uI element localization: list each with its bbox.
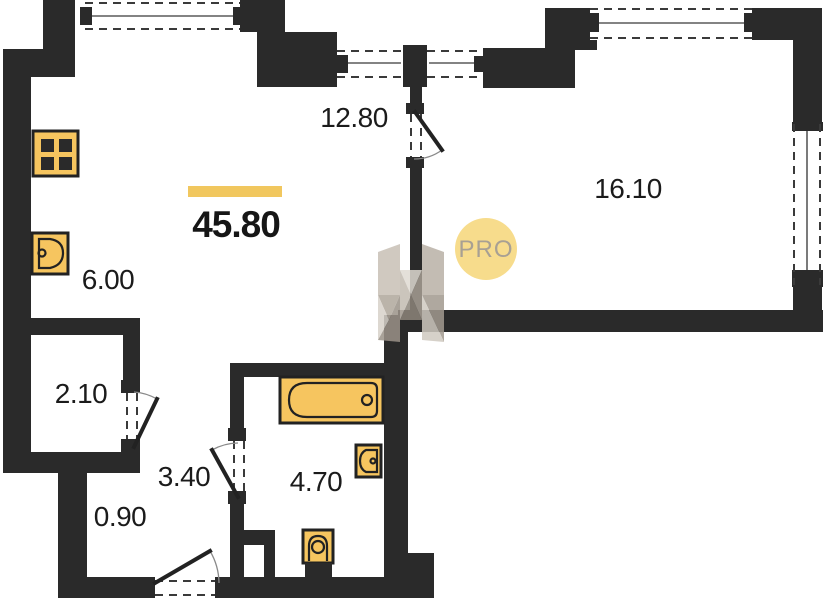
door-jamb	[228, 428, 246, 441]
door-jamb	[121, 380, 140, 393]
wall-segment	[3, 49, 31, 473]
bathtub-icon	[280, 377, 383, 423]
wall-segment	[23, 452, 140, 473]
door-bathroom	[212, 441, 244, 497]
window-top-mid-right	[427, 49, 484, 79]
wall-segment	[230, 363, 244, 430]
bathroom-sink-icon	[356, 445, 381, 477]
area-label-living: 12.80	[320, 102, 388, 133]
wall-segment	[58, 465, 87, 598]
wall-segment	[225, 577, 408, 598]
area-label-kitchen: 6.00	[82, 264, 135, 295]
pro-badge: PRO	[455, 218, 517, 280]
window-jamb	[744, 13, 755, 32]
kitchen-sink-icon	[32, 233, 68, 274]
window-top-mid-left	[337, 49, 403, 79]
area-label-wardrobe: 2.10	[55, 378, 108, 409]
door-jamb	[215, 577, 225, 598]
door-jamb	[145, 577, 155, 598]
pro-badge-text: PRO	[458, 236, 513, 263]
door-bedroom	[411, 112, 442, 159]
wall-segment	[384, 315, 408, 598]
window-bedroom-top	[588, 7, 755, 40]
total-area-underline	[188, 186, 282, 197]
door-wardrobe	[127, 392, 157, 447]
window-jamb	[792, 122, 823, 131]
wall-segment	[793, 28, 822, 124]
door-entrance	[155, 551, 219, 595]
area-label-entry: 0.90	[94, 501, 147, 532]
area-label-bathroom: 4.70	[290, 466, 343, 497]
window-jamb	[80, 7, 92, 25]
wall-segment	[43, 0, 75, 52]
window-jamb	[474, 56, 484, 72]
wall-segment	[406, 553, 434, 598]
stove-icon	[33, 131, 78, 176]
duct-shaft-wall	[244, 530, 275, 545]
area-label-hallway: 3.40	[158, 461, 211, 492]
duct-shaft-wall	[264, 545, 275, 578]
toilet-icon	[303, 530, 333, 578]
area-label-bedroom: 16.10	[594, 173, 662, 204]
window-bedroom-right	[792, 124, 822, 285]
window-jamb	[337, 55, 348, 73]
wall-segment	[230, 363, 384, 377]
floorplan-drawing: PRO 45.80 12.80 16.10 6.00 2.10 3.40 0.9…	[0, 0, 824, 600]
wall-segment	[398, 310, 823, 332]
window-jamb	[233, 7, 245, 25]
window-jamb	[588, 13, 599, 32]
total-area-label: 45.80	[192, 204, 280, 245]
wall-segment	[403, 45, 427, 87]
wall-segment	[3, 318, 140, 335]
wall-segment	[257, 32, 337, 87]
window-top-left	[80, 2, 245, 30]
wall-segment	[483, 48, 575, 88]
wall-segment	[123, 318, 140, 382]
floorplan: PRO 45.80 12.80 16.10 6.00 2.10 3.40 0.9…	[0, 0, 824, 600]
wall-segment	[240, 0, 285, 32]
